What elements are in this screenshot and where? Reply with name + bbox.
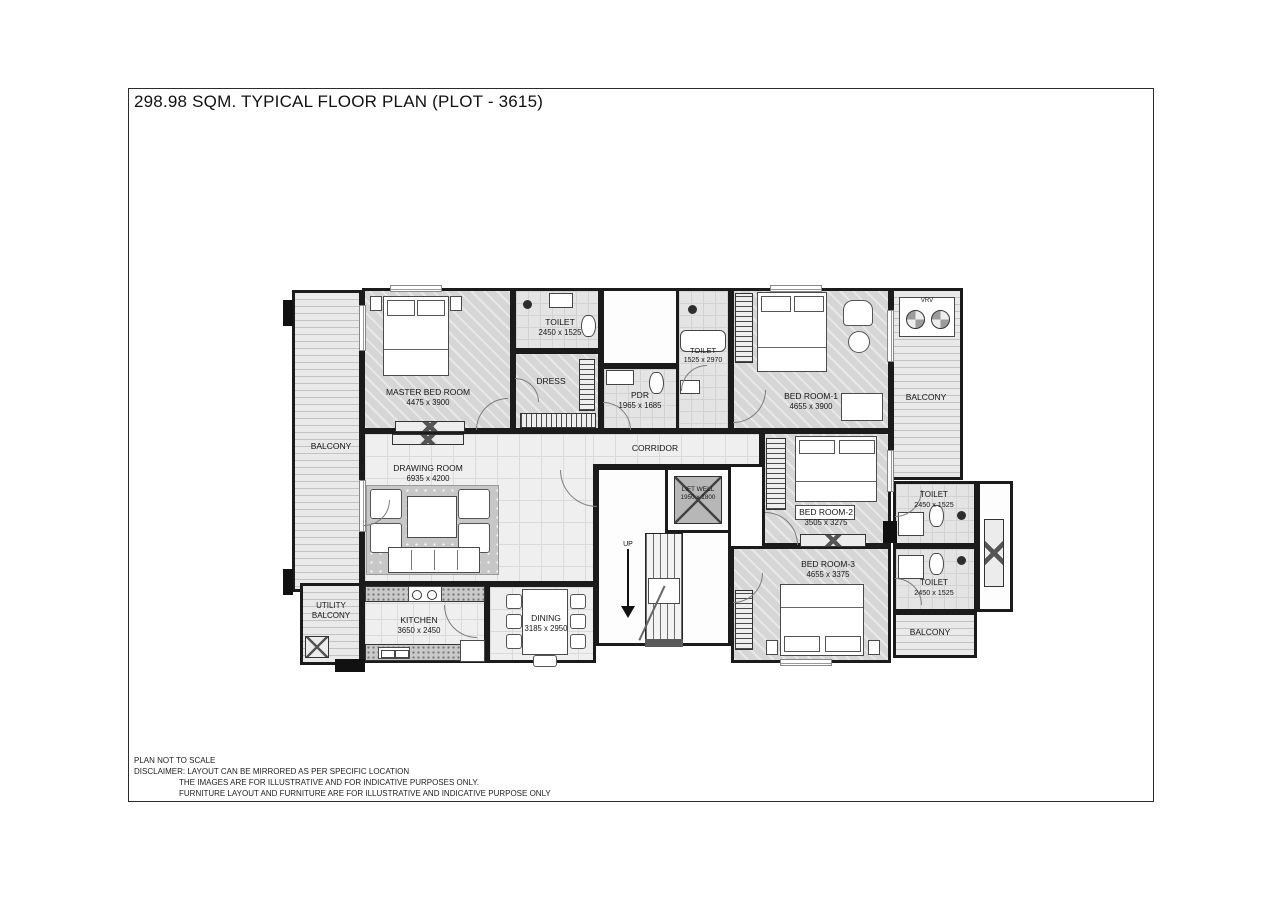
note-furniture: FURNITURE LAYOUT AND FURNITURE ARE FOR I… <box>179 789 551 798</box>
dining-chair <box>570 634 586 649</box>
label-master-bedroom: MASTER BED ROOM4475 x 3900 <box>373 387 483 408</box>
pdr-sink <box>606 370 634 385</box>
label-bedroom-2: BED ROOM-23505 x 3275 <box>771 507 881 528</box>
tv-console-hatch <box>392 434 464 445</box>
bedroom2-bed <box>795 436 877 502</box>
dining-chair <box>506 634 522 649</box>
label-drawing-room: DRAWING ROOM6935 x 4200 <box>373 463 483 484</box>
vrv-label: VRV <box>900 298 954 306</box>
stair-threshold <box>645 639 683 647</box>
dining-chair <box>533 655 557 667</box>
master-side-table <box>370 296 382 311</box>
label-balcony-left: BALCONY <box>286 441 376 452</box>
sofa-seam <box>457 550 458 570</box>
label-dining: DINING3185 x 2950 <box>511 613 581 634</box>
dining-chair <box>506 594 522 609</box>
kitchen-sink <box>378 647 410 659</box>
floor-plan: LIFT WELL 1950 x 1800 UP <box>283 283 1023 688</box>
label-bedroom-3: BED ROOM-34655 x 3375 <box>773 559 883 580</box>
master-bed <box>383 296 449 376</box>
fan-icon <box>931 310 950 329</box>
pillow <box>761 296 791 312</box>
lift-well-dim: 1950 x 1800 <box>668 494 728 502</box>
window-bedroom2-right <box>887 450 894 492</box>
bedroom3-side-table <box>766 640 778 655</box>
wall-pier <box>283 569 293 595</box>
up-label: UP <box>619 541 637 548</box>
note-not-to-scale: PLAN NOT TO SCALE <box>134 756 215 765</box>
bedroom1-round-table <box>848 331 870 353</box>
window-bedroom1-top <box>770 285 822 292</box>
bedroom3-bed <box>780 584 864 656</box>
stair-up-arrow: UP <box>619 541 637 618</box>
entry-threshold <box>335 659 365 672</box>
toilet2-wc <box>929 553 944 575</box>
lift-well: LIFT WELL 1950 x 1800 <box>665 467 731 533</box>
pillow <box>387 300 415 316</box>
blanket-line <box>781 607 863 608</box>
shower-head <box>523 300 532 309</box>
page-title: 298.98 SQM. TYPICAL FLOOR PLAN (PLOT - 3… <box>134 92 543 112</box>
label-utility-balcony: UTILITY BALCONY <box>305 601 357 622</box>
shower-head <box>957 556 966 565</box>
window-master-top <box>390 285 442 292</box>
pillow <box>417 300 445 316</box>
bedroom3-side-table <box>868 640 880 655</box>
master-console-hatch <box>395 421 465 432</box>
bedroom2-wardrobe <box>766 438 786 510</box>
arrow-head-icon <box>621 606 635 618</box>
sink <box>549 293 573 308</box>
pillow <box>825 636 861 652</box>
window-master-left <box>359 305 366 351</box>
window-bedroom3-bottom <box>780 659 832 666</box>
sink-bowl <box>381 650 395 658</box>
label-dress: DRESS <box>521 376 581 387</box>
note-disclaimer: DISCLAIMER: LAYOUT CAN BE MIRRORED AS PE… <box>134 767 409 776</box>
plumbing-wall <box>883 521 897 543</box>
label-balcony-right-bottom: BALCONY <box>885 627 975 638</box>
sink-bowl <box>395 650 409 658</box>
master-side-table <box>450 296 462 311</box>
fan-icon <box>906 310 925 329</box>
blanket-line <box>384 349 448 350</box>
bedroom2-console-hatch <box>800 534 866 547</box>
burner-icon <box>427 590 437 600</box>
label-kitchen: KITCHEN3650 x 2450 <box>364 615 474 636</box>
lift-well-label: LIFT WELL <box>668 486 728 494</box>
shower-head <box>688 305 697 314</box>
vrv-unit: VRV <box>899 297 955 337</box>
label-balcony-right-top: BALCONY <box>881 392 971 403</box>
label-pdr: PDR1965 x 1685 <box>605 390 675 411</box>
dress-shelf <box>579 359 595 411</box>
bedroom1-bed <box>757 292 827 372</box>
label-bedroom-1: BED ROOM-14655 x 3900 <box>756 391 866 412</box>
label-toilet-r1: TOILET2450 x 1525 <box>894 490 974 510</box>
pillow <box>799 440 835 454</box>
pillow <box>839 440 875 454</box>
arrow-shaft <box>627 549 629 607</box>
label-toilet-br1: TOILET1525 x 2970 <box>668 346 738 365</box>
stair-landing <box>648 578 680 604</box>
hob <box>408 586 442 602</box>
burner-icon <box>412 590 422 600</box>
dress-wardrobe <box>520 413 596 428</box>
sofa <box>388 547 480 573</box>
label-toilet-r2: TOILET2450 x 1525 <box>894 578 974 598</box>
label-toilet-master: TOILET2450 x 1525 <box>515 317 605 338</box>
blanket-line <box>796 481 876 482</box>
armchair <box>458 489 490 519</box>
toilet2-sink <box>898 555 924 579</box>
note-illustrative: THE IMAGES ARE FOR ILLUSTRATIVE AND FOR … <box>179 778 479 787</box>
utility-hatch <box>305 636 329 658</box>
coffee-table <box>407 496 457 538</box>
pillow <box>794 296 824 312</box>
shower-head <box>957 511 966 520</box>
dining-chair <box>570 594 586 609</box>
window-bedroom1-right <box>887 310 894 362</box>
wall-pier <box>283 300 293 326</box>
pillow <box>784 636 820 652</box>
sofa-seam <box>434 550 435 570</box>
label-corridor: CORRIDOR <box>610 443 700 454</box>
shaft-hatch <box>984 519 1004 587</box>
fridge <box>460 640 485 662</box>
blanket-line <box>758 347 826 348</box>
sofa-seam <box>411 550 412 570</box>
bedroom1-armchair <box>843 300 873 326</box>
